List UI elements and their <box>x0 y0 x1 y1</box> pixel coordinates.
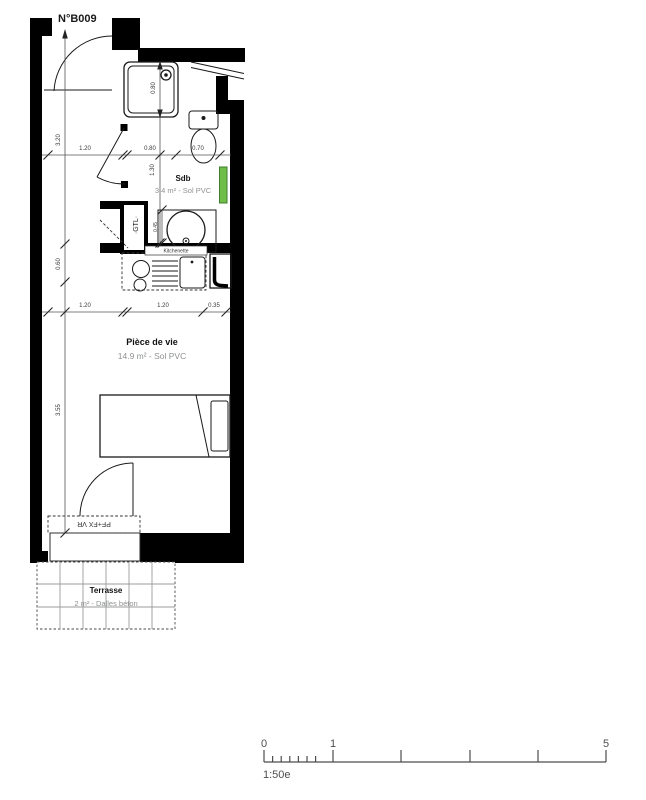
dim-label: 1.20 <box>79 303 91 309</box>
dim-label: 0.45 <box>153 222 159 232</box>
terrace-door <box>80 463 133 516</box>
dim-label: 3.20 <box>56 134 62 146</box>
dim-label: 0.35 <box>208 303 220 309</box>
living-details-label: 14.9 m² - Sol PVC <box>118 351 187 361</box>
dimension-lines <box>42 29 231 538</box>
pillow <box>211 401 228 451</box>
burner-icon <box>134 279 146 291</box>
floor-plan-svg: Kitchenette <box>0 0 646 800</box>
dim-label: 0.80 <box>151 82 157 94</box>
scale-ratio-label: 1:50e <box>263 769 291 781</box>
dim-label: 1.30 <box>150 164 156 176</box>
scale-tick-label: 1 <box>330 738 336 750</box>
dim-label: 0.60 <box>56 258 62 270</box>
bathroom-details-label: 3.4 m² - Sol PVC <box>155 186 212 195</box>
bathroom-door-leaf <box>97 128 124 177</box>
dim-arrow-up <box>62 29 68 39</box>
terrace-name-label: Terrasse <box>90 586 123 595</box>
duct-box <box>210 254 231 288</box>
threshold-slab <box>50 533 140 561</box>
gtl-label: ·GTL· <box>133 216 140 234</box>
dim-label: 0.70 <box>192 146 204 152</box>
scale-tick-label: 0 <box>261 738 267 750</box>
living-name-label: Pièce de vie <box>126 337 178 347</box>
floor-plan-page: Kitchenette <box>0 0 646 800</box>
room-labels: N°B009 Sdb 3.4 m² - Sol PVC Pièce de vie… <box>58 13 212 608</box>
drying-rack <box>152 261 178 286</box>
radiator <box>220 167 228 203</box>
dim-label: 0.80 <box>144 146 156 152</box>
dim-label: 1.20 <box>157 303 169 309</box>
unit-number-label: N°B009 <box>58 13 97 25</box>
terrace-door-swing-arc <box>80 463 133 516</box>
window-type-label: PF+FX VR <box>77 520 111 527</box>
entrance-door-swing-arc <box>54 36 112 91</box>
bathroom-door-swing-arc <box>97 177 125 184</box>
bathroom-name-label: Sdb <box>175 174 190 183</box>
scale-minor-ticks <box>273 756 316 762</box>
scale-tick-label: 5 <box>603 738 609 750</box>
dim-label: 1.20 <box>79 146 91 152</box>
terrace-details-label: 2 m² - Dalles béton <box>74 599 137 608</box>
dim-label: 3.55 <box>56 404 62 416</box>
toilet-flush-button <box>202 116 206 120</box>
bed-cover-fold <box>196 395 209 457</box>
door-hinge <box>121 124 128 131</box>
bed <box>100 395 230 457</box>
entrance-door <box>44 36 112 91</box>
kitchen-faucet <box>191 261 194 264</box>
scale-bar: 0 1 5 1:50e <box>261 738 609 781</box>
terrace <box>37 562 175 629</box>
kitchenette-label: Kitchenette <box>163 249 188 255</box>
burner-icon <box>133 261 150 278</box>
